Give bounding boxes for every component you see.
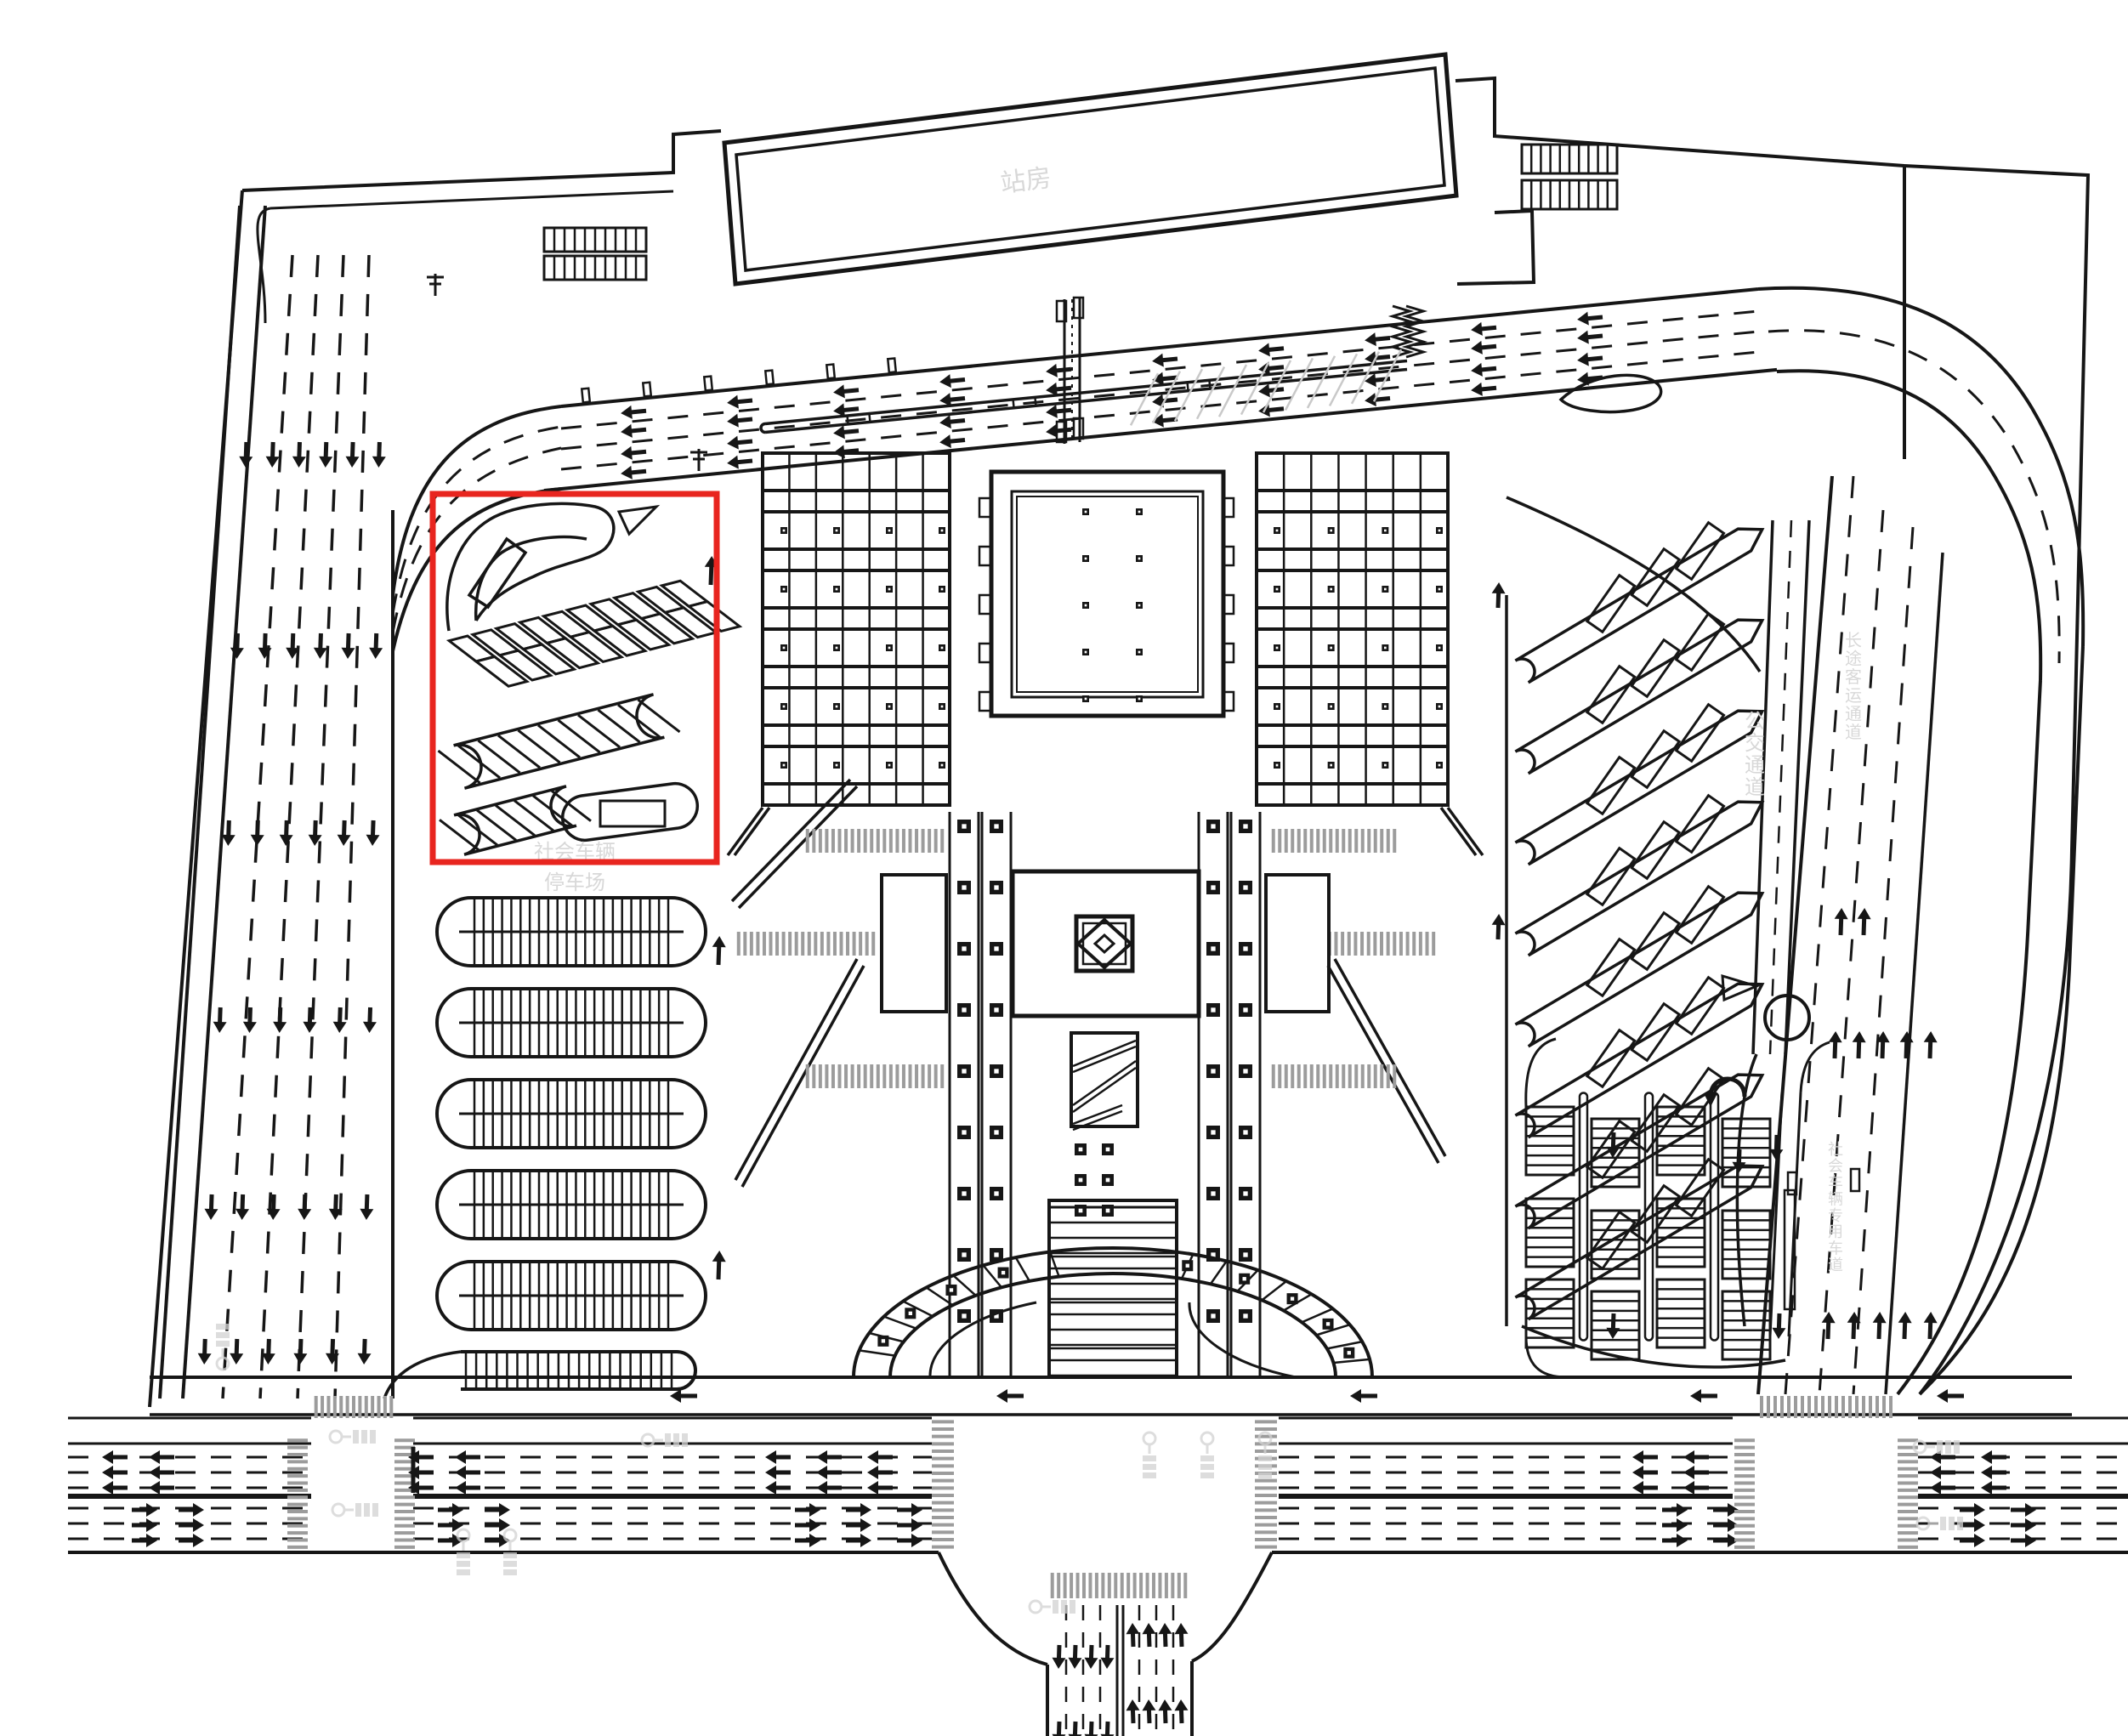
social-lane-label: 社会车辆专用车道	[1828, 1141, 1843, 1274]
site-plan-drawing: 站房 社会车辆 停车场 公交通道 长途客运通道 社会车辆专用车道	[0, 0, 2128, 1736]
northeast-parking-lot	[1522, 145, 1617, 209]
highlighted-bus-parking-area	[438, 503, 740, 854]
grand-stairs	[1049, 1200, 1177, 1377]
east-approach-road	[1704, 476, 2083, 1394]
axis-colonnades	[950, 812, 1260, 1377]
west-parking-rows	[384, 898, 726, 1398]
south-road-network	[68, 1377, 2128, 1736]
site-plan-page: 站房 社会车辆 停车场 公交通道 长途客运通道 社会车辆专用车道	[0, 0, 2128, 1736]
station-building-label: 站房	[999, 164, 1053, 198]
highlight-box	[433, 494, 717, 862]
northwest-parking-lot	[544, 228, 646, 280]
coach-lane-label: 长途客运通道	[1845, 631, 1862, 742]
central-plaza-diamond	[1013, 871, 1199, 1016]
plaza-tree-grids	[763, 453, 1448, 805]
parking-lot-label: 停车场	[544, 871, 605, 894]
bus-lane-label: 公交通道	[1745, 710, 1765, 799]
escalator-ramp	[1071, 1033, 1138, 1217]
east-diagonal-bus-bays	[0, 0, 1785, 1367]
central-canopy-structure	[979, 472, 1234, 716]
station-building	[724, 54, 1456, 284]
